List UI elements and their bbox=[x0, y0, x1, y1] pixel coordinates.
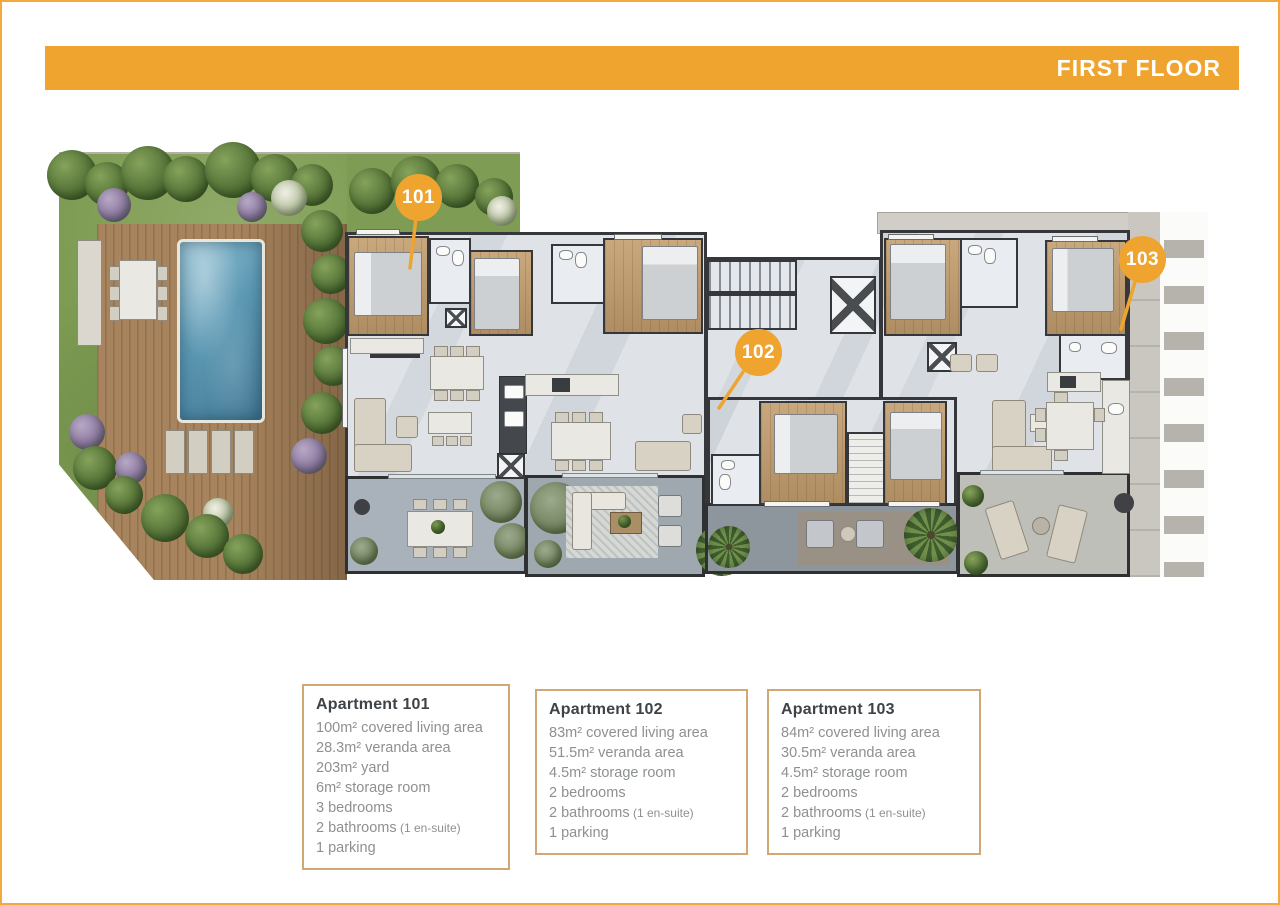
bed bbox=[474, 258, 520, 330]
apartment-spec-line: 1 parking bbox=[316, 838, 496, 858]
apartment-spec-line: 2 bathrooms (1 en-suite) bbox=[316, 818, 496, 838]
stool bbox=[446, 436, 458, 446]
chair bbox=[109, 266, 120, 281]
kitchen-counter-103-right bbox=[1102, 380, 1130, 474]
bathroom bbox=[711, 454, 761, 506]
tree bbox=[141, 494, 189, 542]
bush bbox=[964, 551, 988, 575]
apartment-spec-line: 1 parking bbox=[781, 823, 967, 843]
chair bbox=[589, 412, 603, 423]
armchair bbox=[806, 520, 834, 548]
bed bbox=[642, 246, 698, 320]
apartment-spec-line: 3 bedrooms bbox=[316, 798, 496, 818]
apartment-info-box-102: Apartment 102 83m² covered living area51… bbox=[535, 689, 748, 855]
veranda-bedwing bbox=[705, 503, 959, 574]
pergola-slats bbox=[1160, 212, 1208, 577]
apartment-spec-line: 51.5m² veranda area bbox=[549, 743, 734, 763]
side-table bbox=[840, 526, 856, 542]
sink bbox=[559, 250, 573, 260]
swimming-pool bbox=[177, 239, 265, 423]
apartment-info-box-101: Apartment 101 100m² covered living area2… bbox=[302, 684, 510, 870]
toilet bbox=[984, 248, 996, 264]
dining-table-102 bbox=[551, 422, 611, 460]
apartment-specs: 83m² covered living area51.5m² veranda a… bbox=[549, 723, 734, 843]
bathroom bbox=[960, 238, 1018, 308]
tree bbox=[105, 476, 143, 514]
flower-bush bbox=[487, 196, 517, 226]
chair bbox=[572, 412, 586, 423]
bush bbox=[534, 540, 562, 568]
apartment-specs: 84m² covered living area30.5m² veranda a… bbox=[781, 723, 967, 843]
sink bbox=[1108, 403, 1124, 415]
flower-bush bbox=[271, 180, 307, 216]
apartment-badge-103[interactable]: 103 bbox=[1119, 236, 1166, 283]
chair bbox=[555, 460, 569, 471]
badge-label: 101 bbox=[402, 187, 435, 209]
badge-label: 102 bbox=[742, 342, 775, 364]
apartment-badge-102[interactable]: 102 bbox=[735, 329, 782, 376]
potted-plant bbox=[431, 520, 445, 534]
dining-table-103 bbox=[1046, 402, 1094, 450]
stair-rail bbox=[709, 291, 795, 296]
stove bbox=[552, 378, 570, 392]
veranda-103 bbox=[957, 472, 1130, 577]
toilet bbox=[719, 474, 731, 490]
purple-bush bbox=[237, 192, 267, 222]
outdoor-kitchen bbox=[77, 240, 102, 346]
apartment-info-box-103: Apartment 103 84m² covered living area30… bbox=[767, 689, 981, 855]
kitchen-counter-102 bbox=[525, 374, 619, 396]
glass-door bbox=[980, 470, 1064, 475]
armchair bbox=[658, 525, 682, 547]
apartment-spec-line: 6m² storage room bbox=[316, 778, 496, 798]
chair bbox=[555, 412, 569, 423]
sun-lounger bbox=[188, 430, 208, 474]
bush bbox=[962, 485, 984, 507]
kitchen-counter-101 bbox=[499, 376, 527, 454]
chair bbox=[157, 286, 168, 301]
page-title: FIRST FLOOR bbox=[1057, 55, 1221, 82]
sink bbox=[436, 246, 450, 256]
chair bbox=[1054, 450, 1068, 461]
window bbox=[342, 348, 348, 428]
sun-lounger bbox=[165, 430, 185, 474]
apartment-spec-line: 28.3m² veranda area bbox=[316, 738, 496, 758]
sofa bbox=[354, 444, 412, 472]
chair bbox=[434, 390, 448, 401]
garden bbox=[59, 152, 347, 580]
bed bbox=[354, 252, 422, 316]
stove bbox=[504, 411, 524, 427]
tree bbox=[163, 156, 209, 202]
apartment-spec-line: 203m² yard bbox=[316, 758, 496, 778]
page: FIRST FLOOR bbox=[0, 0, 1280, 905]
veranda-102 bbox=[525, 475, 705, 577]
window bbox=[888, 234, 934, 240]
bed bbox=[890, 244, 946, 320]
dining-table-101 bbox=[430, 356, 484, 390]
purple-bush bbox=[69, 414, 105, 450]
armchair bbox=[950, 354, 972, 372]
armchair bbox=[682, 414, 702, 434]
sink bbox=[721, 460, 735, 470]
window bbox=[356, 229, 400, 235]
tree bbox=[223, 534, 263, 574]
chair bbox=[589, 460, 603, 471]
bed bbox=[774, 414, 838, 474]
sun-lounger bbox=[234, 430, 254, 474]
storage-box bbox=[445, 308, 467, 328]
chair bbox=[453, 499, 467, 510]
chair bbox=[434, 346, 448, 357]
sink bbox=[968, 245, 982, 255]
sink bbox=[504, 385, 524, 399]
bed bbox=[1052, 248, 1114, 312]
bush bbox=[350, 537, 378, 565]
sofa bbox=[635, 441, 691, 471]
window bbox=[1052, 236, 1098, 242]
sofa bbox=[992, 446, 1052, 472]
chair bbox=[466, 346, 480, 357]
chair bbox=[1094, 408, 1105, 422]
palm-tree bbox=[904, 508, 958, 562]
sideboard bbox=[350, 338, 424, 354]
apartment-spec-line: 83m² covered living area bbox=[549, 723, 734, 743]
apartment-spec-line: 4.5m² storage room bbox=[549, 763, 734, 783]
tree bbox=[301, 210, 343, 252]
chair bbox=[433, 547, 447, 558]
chair bbox=[157, 266, 168, 281]
apartment-spec-line: 4.5m² storage room bbox=[781, 763, 967, 783]
chair bbox=[453, 547, 467, 558]
armchair bbox=[976, 354, 998, 372]
apartment-spec-line: 2 bedrooms bbox=[781, 783, 967, 803]
elevator bbox=[830, 276, 876, 334]
tree bbox=[303, 298, 349, 344]
toilet bbox=[575, 252, 587, 268]
stool bbox=[432, 436, 444, 446]
sun-lounger bbox=[984, 500, 1029, 561]
sun-lounger bbox=[211, 430, 231, 474]
tree bbox=[480, 481, 522, 523]
fire-pit bbox=[354, 499, 370, 515]
wardrobe bbox=[847, 432, 885, 505]
glass-door bbox=[388, 474, 496, 479]
tree bbox=[301, 392, 343, 434]
apartment-spec-line: 2 bathrooms (1 en-suite) bbox=[549, 803, 734, 823]
palm-tree bbox=[708, 526, 750, 568]
chair bbox=[450, 346, 464, 357]
side-table bbox=[1032, 517, 1050, 535]
storage-box bbox=[497, 453, 525, 479]
apartment-spec-line: 84m² covered living area bbox=[781, 723, 967, 743]
outdoor-sofa bbox=[572, 492, 592, 550]
kitchen-counter-103-top bbox=[1047, 372, 1101, 392]
chair bbox=[109, 286, 120, 301]
apartment-spec-line: 100m² covered living area bbox=[316, 718, 496, 738]
apartment-title: Apartment 102 bbox=[549, 701, 734, 719]
header-bar: FIRST FLOOR bbox=[45, 46, 1239, 90]
apartment-spec-line: 2 bedrooms bbox=[549, 783, 734, 803]
chair bbox=[1054, 392, 1068, 403]
kitchen-island bbox=[428, 412, 472, 434]
window bbox=[764, 501, 830, 507]
window bbox=[614, 234, 662, 240]
purple-bush bbox=[97, 188, 131, 222]
sun-lounger bbox=[1046, 504, 1088, 564]
chair bbox=[450, 390, 464, 401]
chair bbox=[433, 499, 447, 510]
toilet bbox=[1101, 342, 1117, 354]
apartment-title: Apartment 103 bbox=[781, 701, 967, 719]
tv bbox=[370, 354, 420, 358]
chair bbox=[1035, 408, 1046, 422]
apartment-spec-line: 2 bathrooms (1 en-suite) bbox=[781, 803, 967, 823]
glass-door bbox=[562, 473, 658, 478]
armchair bbox=[396, 416, 418, 438]
chair bbox=[157, 306, 168, 321]
armchair bbox=[658, 495, 682, 517]
chair bbox=[109, 306, 120, 321]
chair bbox=[413, 499, 427, 510]
chair bbox=[466, 390, 480, 401]
apartment-spec-line: 1 parking bbox=[549, 823, 734, 843]
bathroom bbox=[551, 244, 605, 304]
bathroom bbox=[429, 238, 471, 304]
chair bbox=[413, 547, 427, 558]
badge-label: 103 bbox=[1126, 249, 1159, 271]
armchair bbox=[856, 520, 884, 548]
apartment-title: Apartment 101 bbox=[316, 696, 496, 714]
tree bbox=[349, 168, 395, 214]
chair bbox=[1035, 428, 1046, 442]
stove bbox=[1060, 376, 1076, 388]
garden-dining-table bbox=[119, 260, 157, 320]
fire-pit bbox=[1114, 493, 1134, 513]
stool bbox=[460, 436, 472, 446]
apartment-spec-line: 30.5m² veranda area bbox=[781, 743, 967, 763]
veranda-101 bbox=[345, 476, 527, 574]
window bbox=[888, 501, 940, 507]
toilet bbox=[452, 250, 464, 266]
chair bbox=[572, 460, 586, 471]
sink bbox=[1069, 342, 1081, 352]
bed bbox=[890, 412, 942, 480]
potted-plant bbox=[618, 515, 631, 528]
purple-bush bbox=[291, 438, 327, 474]
apartment-specs: 100m² covered living area28.3m² veranda … bbox=[316, 718, 496, 858]
apartment-badge-101[interactable]: 101 bbox=[395, 174, 442, 221]
